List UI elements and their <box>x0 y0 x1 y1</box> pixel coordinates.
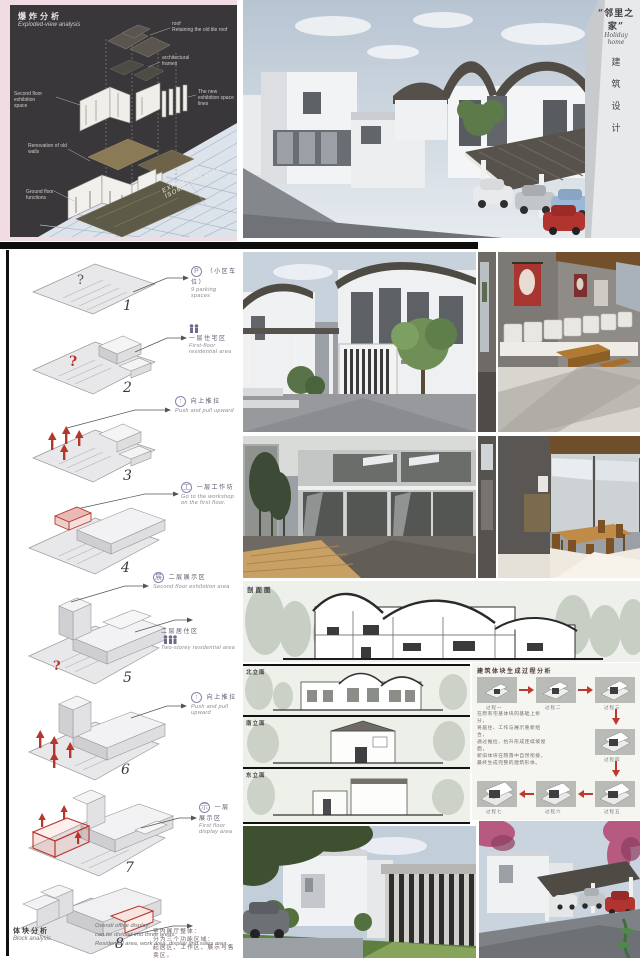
elevation-south: 南立面 <box>243 715 470 767</box>
vertical-char-2: 筑 <box>596 77 636 90</box>
step-5-annotation-a: 展 二层展示区 Second floor exhibition area <box>153 572 237 590</box>
step-number: 2 <box>123 380 132 396</box>
process-thumb-3 <box>595 677 635 703</box>
render-courtyard-entry <box>243 252 476 432</box>
step-5: ? 5 展 二层展示区 Second floor exhibition area… <box>15 580 237 688</box>
hero-scene <box>243 0 640 238</box>
massing-process-panel: 建筑体块生成过程分析 过程一 过程二 过程三 过程四 过程五 过程六 过程七 <box>472 663 640 820</box>
vertical-char-1: 建 <box>596 55 636 68</box>
section-label: 剖面图 <box>247 584 273 594</box>
step-number: 6 <box>121 762 130 778</box>
exploded-title-cn: 爆炸分析 <box>18 11 62 22</box>
elevation-label: 南立面 <box>246 719 266 727</box>
red-arrow-down <box>611 709 621 725</box>
people-icon <box>189 324 199 333</box>
process-caption: 过程七 <box>486 809 503 815</box>
project-title-cn: “邻里之家” <box>596 6 636 32</box>
step-7: 7 示 一层展示区 First floor display area <box>15 784 237 880</box>
hero-render: “邻里之家” Holiday home 建 筑 设 计 <box>243 0 640 238</box>
up-arrow-icon: ↑ <box>191 692 202 703</box>
step-6-annotation: ↑ 向上推拉 Push and pull upward <box>191 692 237 716</box>
svg-text:?: ? <box>69 354 77 370</box>
small-painting <box>574 274 587 297</box>
red-arrow-right <box>519 685 534 695</box>
process-caption: 过程六 <box>545 809 562 815</box>
project-title-block: “邻里之家” Holiday home 建 筑 设 计 <box>596 6 636 134</box>
process-thumb-4 <box>595 729 635 755</box>
step-1-annotation: P （小区车位） 9 parking spaces <box>191 266 237 299</box>
render-sliver-dark <box>478 436 496 578</box>
red-arrow-down <box>611 761 621 777</box>
elevation-north: 北立面 <box>243 664 470 715</box>
exploded-axon-drawing <box>10 5 237 237</box>
exploded-axon-canvas: 爆炸分析 Exploded-view analysis roofRetainin… <box>10 5 237 237</box>
render-street-carport <box>479 821 640 958</box>
project-title-en: Holiday home <box>596 32 636 46</box>
step-number: 3 <box>123 468 132 484</box>
step-7-annotation: 示 一层展示区 First floor display area <box>199 802 237 835</box>
process-paragraph: 在原有宅基体块的基础上拆分， 将居住、工作与展示重新组合， 通过推拉、抬升形成连… <box>477 711 549 767</box>
slatted-fence <box>381 864 476 946</box>
exploded-label-exhibition: Second floor exhibitionspace <box>14 91 58 109</box>
section-drawing: 剖面图 <box>243 581 640 662</box>
step-2-annotation: 一层住宅区 First-floor residential area <box>189 324 237 355</box>
display-icon: 示 <box>199 802 210 813</box>
red-arrow-right <box>578 685 593 695</box>
elevation-east: 东立面 <box>243 767 470 824</box>
process-caption: 过程五 <box>604 809 621 815</box>
exploded-label-space: The new exhibition spacelines <box>198 89 236 107</box>
step-2: ? 2 一层住宅区 First-floor residential area <box>15 318 237 398</box>
process-title: 建筑体块生成过程分析 <box>477 666 552 675</box>
process-thumb-1 <box>477 677 517 703</box>
render-dining-interior <box>498 436 640 578</box>
render-street-fence <box>243 826 476 958</box>
elevation-label: 北立面 <box>246 668 266 676</box>
vertical-char-3: 设 <box>596 99 636 112</box>
step-number: 7 <box>125 860 134 876</box>
render-lounge-interior <box>498 252 640 432</box>
elevations-stack: 北立面 南立面 东立面 <box>243 664 470 820</box>
exploded-axon-panel: 爆炸分析 Exploded-view analysis roofRetainin… <box>0 0 237 241</box>
exploded-label-renovation: Renovation of oldwalls <box>28 143 72 155</box>
step-5-annotation-b: 二层居住区 Two-storey residential area <box>161 626 237 651</box>
exhibition-icon: 展 <box>153 572 164 583</box>
process-thumb-6 <box>536 781 576 807</box>
process-thumb-5 <box>595 781 635 807</box>
exploded-label-roof: roofRetaining the old tile roof <box>172 21 227 33</box>
step-1: ? 1 P （小区车位） 9 parking spaces <box>15 252 237 316</box>
wall-painting <box>512 262 543 306</box>
step-6: 6 ↑ 向上推拉 Push and pull upward <box>15 690 237 782</box>
people-icon <box>163 635 177 644</box>
step-4-annotation: 工 一层工作坊 Go to the workshop on the first … <box>181 482 237 506</box>
step-number: 1 <box>123 298 132 314</box>
divider-bar <box>0 242 478 249</box>
step-number: 4 <box>121 560 130 576</box>
red-arrow-left <box>519 789 534 799</box>
process-thumb-7 <box>477 781 517 807</box>
exploded-title-en: Exploded-view analysis <box>18 22 80 28</box>
block-analysis-label-cn: 体块分析 <box>13 926 49 936</box>
svg-text:?: ? <box>53 659 61 674</box>
up-arrow-icon: ↑ <box>175 396 186 407</box>
block-analysis-label-en: Block analysis <box>13 936 51 942</box>
workshop-icon: 工 <box>181 482 192 493</box>
presentation-board: 爆炸分析 Exploded-view analysis roofRetainin… <box>0 0 640 960</box>
parking-icon: P <box>191 266 202 277</box>
svg-text:?: ? <box>77 273 84 288</box>
render-sliver-glass <box>478 252 496 432</box>
elevation-label: 东立面 <box>246 771 266 779</box>
step-number: 5 <box>123 670 132 686</box>
step-3-annotation: ↑ 向上推拉 Push and pull upward <box>175 396 235 414</box>
red-arrow-left <box>578 789 593 799</box>
render-courtyard-glass <box>243 436 476 578</box>
block-analysis-notes: Overall office display: can be divided i… <box>95 922 228 949</box>
exploded-label-ground: Ground floorfunctions <box>26 189 70 201</box>
vertical-char-4: 计 <box>596 121 636 134</box>
exploded-label-frames: architecturalframes <box>162 55 189 67</box>
massing-analysis-panel: ? 1 P （小区车位） 9 parking spaces <box>6 250 240 956</box>
step-4: 4 工 一层工作坊 Go to the workshop on the firs… <box>15 490 237 578</box>
process-thumb-2 <box>536 677 576 703</box>
step-3: 3 ↑ 向上推拉 Push and pull upward <box>15 402 237 486</box>
